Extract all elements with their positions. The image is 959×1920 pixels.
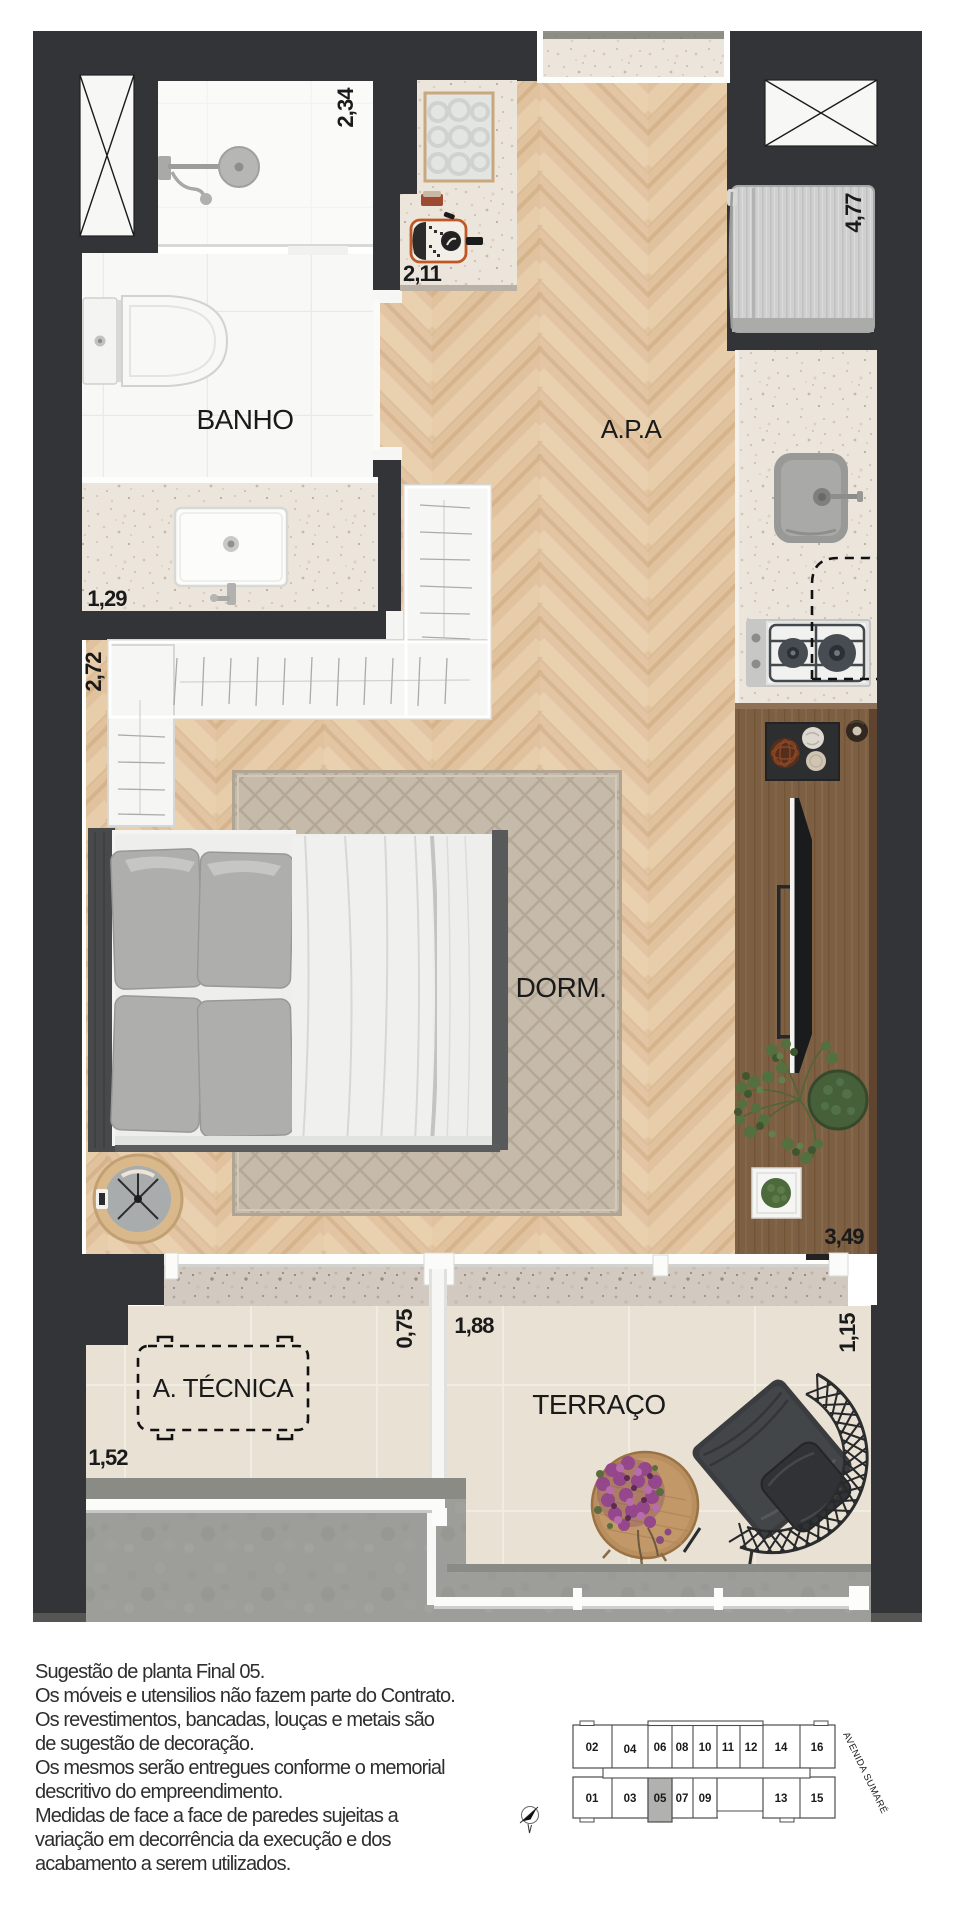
svg-text:1,29: 1,29 [87, 586, 127, 611]
svg-text:04: 04 [624, 1744, 637, 1756]
svg-text:16: 16 [811, 1742, 824, 1754]
svg-text:14: 14 [775, 1742, 788, 1754]
svg-text:13: 13 [775, 1793, 788, 1805]
svg-text:02: 02 [586, 1742, 599, 1754]
svg-text:09: 09 [699, 1793, 712, 1805]
svg-text:05: 05 [654, 1793, 667, 1805]
svg-text:1,52: 1,52 [88, 1445, 128, 1470]
svg-text:03: 03 [624, 1793, 637, 1805]
svg-text:2,11: 2,11 [403, 261, 442, 286]
svg-text:15: 15 [811, 1793, 824, 1805]
svg-text:AVENIDA SUMARÉ: AVENIDA SUMARÉ [840, 1730, 889, 1815]
svg-text:DORM.: DORM. [516, 972, 607, 1003]
svg-text:0,75: 0,75 [392, 1309, 417, 1349]
svg-text:01: 01 [586, 1793, 599, 1805]
svg-text:1,15: 1,15 [835, 1313, 860, 1353]
svg-text:4,77: 4,77 [841, 193, 866, 233]
svg-text:08: 08 [676, 1742, 689, 1754]
svg-text:2,72: 2,72 [81, 652, 106, 692]
svg-text:06: 06 [654, 1742, 667, 1754]
svg-text:07: 07 [676, 1793, 689, 1805]
svg-text:TERRAÇO: TERRAÇO [532, 1389, 665, 1420]
svg-text:BANHO: BANHO [196, 404, 293, 435]
svg-text:A.P.A: A.P.A [601, 414, 663, 444]
svg-text:1,88: 1,88 [454, 1313, 494, 1338]
svg-text:10: 10 [699, 1742, 712, 1754]
svg-text:12: 12 [745, 1742, 758, 1754]
svg-text:3,49: 3,49 [824, 1224, 864, 1249]
svg-text:2,34: 2,34 [333, 87, 358, 128]
svg-text:A. TÉCNICA: A. TÉCNICA [153, 1373, 295, 1403]
svg-text:11: 11 [722, 1742, 735, 1754]
